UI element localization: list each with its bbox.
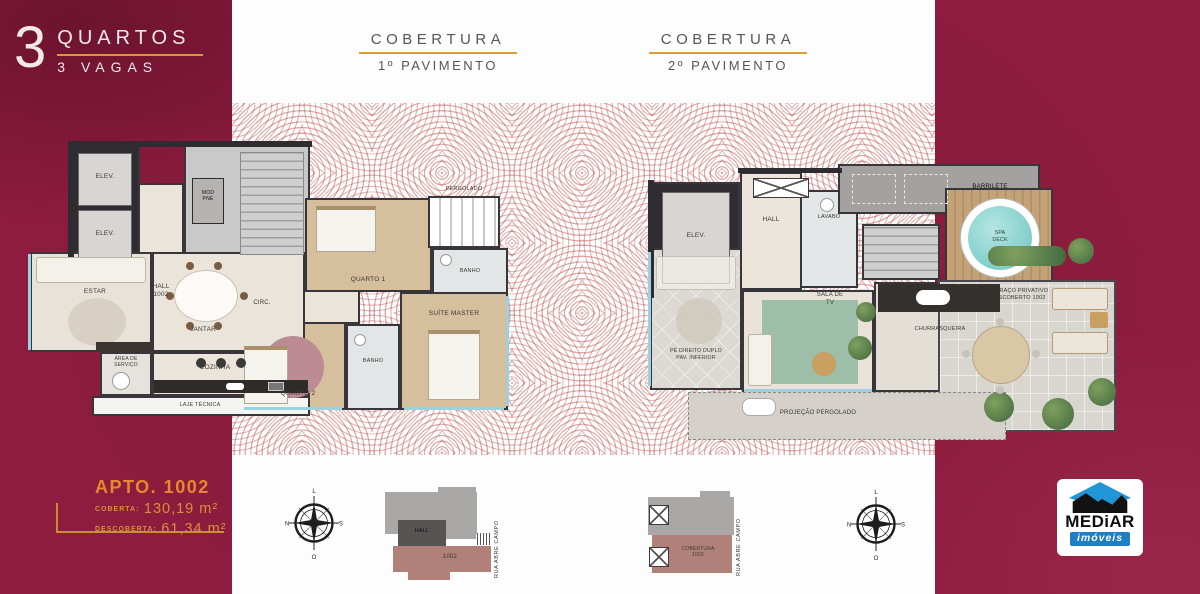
area-coberta-label: COBERTA:	[95, 506, 139, 513]
area-descoberta-label: DESCOBERTA:	[95, 526, 157, 533]
window-strip	[648, 252, 651, 386]
area-coberta-value: 130,19 m²	[144, 501, 218, 517]
toilet	[354, 334, 366, 346]
plan1-stairs	[240, 152, 304, 255]
terrace-table	[972, 326, 1030, 384]
sofa	[36, 257, 146, 283]
siteplan1-hatch	[477, 533, 491, 545]
window-strip	[744, 389, 872, 392]
plant	[1042, 398, 1074, 430]
room-label-quarto1: QUARTO 1	[318, 276, 418, 284]
plan2-wall-top	[738, 168, 842, 173]
header-2-divider	[649, 52, 807, 54]
flyer-canvas: 3 QUARTOS 3 VAGAS COBERTURA 1º PAVIMENTO…	[0, 0, 1200, 594]
sofa-below	[656, 256, 736, 290]
compass-rose-1: L S O N	[283, 485, 345, 561]
chair	[996, 386, 1004, 394]
sink	[226, 383, 244, 390]
toilet	[820, 198, 834, 212]
barrilete-hatch	[852, 174, 896, 204]
area-descoberta-value: 61,34 m²	[161, 521, 226, 537]
plant	[848, 336, 872, 360]
hedge	[988, 246, 1066, 266]
headline-number: 3	[14, 20, 46, 75]
plant	[1068, 238, 1094, 264]
room-label-churrasqueira: CHURRASQUEIRA	[876, 326, 1004, 333]
apartment-info: APTO. 1002 COBERTA: 130,19 m² DESCOBERTA…	[95, 477, 227, 538]
rug-green	[762, 300, 858, 384]
chair	[1032, 350, 1040, 358]
chair	[240, 292, 248, 300]
headline: 3 QUARTOS 3 VAGAS	[14, 20, 203, 75]
toilet	[440, 254, 452, 266]
headline-line1: QUARTOS	[57, 27, 203, 50]
siteplan1-unit-bump	[408, 572, 450, 580]
plan1-pergolado	[428, 196, 500, 248]
compass-letter-top: L	[312, 489, 316, 495]
compass-letter-bottom: O	[874, 556, 879, 562]
compass-letter-left: N	[847, 523, 851, 529]
mediar-logo: MEDiAR imóveis	[1057, 479, 1143, 556]
info-bracket-vertical	[56, 503, 58, 533]
window-strip	[506, 296, 509, 406]
plant	[984, 392, 1014, 422]
compass-rose-2: L S O N	[845, 486, 907, 562]
compass-letter-left: N	[285, 522, 289, 528]
room-label-hall1002: HALL 1002	[138, 283, 184, 299]
bbq-sink	[916, 290, 950, 305]
skylight-void-marker	[753, 178, 809, 198]
room-label-area-servico: ÁREA DE SERVIÇO	[100, 356, 152, 369]
room-label-estar: ESTAR	[60, 288, 130, 296]
room-label-banho2: BANHO	[348, 358, 398, 365]
rug	[68, 298, 126, 346]
barrilete-hatch	[904, 174, 948, 204]
siteplan2-building-bump	[700, 491, 730, 501]
side-table	[1090, 312, 1108, 328]
header-2-title: COBERTURA	[643, 31, 813, 48]
siteplan2-unit-label: COBERTURA 1002	[668, 546, 728, 559]
mediar-logo-name: MEDiAR	[1065, 513, 1134, 530]
bed	[316, 206, 376, 252]
header-pavimento-1: COBERTURA 1º PAVIMENTO	[353, 31, 523, 73]
header-1-title: COBERTURA	[353, 31, 523, 48]
elevator-shaft-marker	[649, 505, 669, 525]
compass-letter-bottom: O	[312, 555, 317, 561]
compass-letter-top: L	[874, 490, 878, 496]
chair	[214, 262, 222, 270]
pouf	[812, 352, 836, 376]
washer	[112, 372, 130, 390]
room-label-cozinha: COZINHA	[180, 364, 250, 372]
room-label-elev2: ELEV.	[78, 230, 132, 238]
room-label-terraco: TERRAÇO PRIVATIVO DESCOBERTO 1002	[948, 288, 1088, 302]
headline-line2: 3 VAGAS	[57, 59, 203, 75]
header-1-subtitle: 1º PAVIMENTO	[353, 58, 523, 73]
room-label-elev1: ELEV.	[78, 173, 132, 181]
room-label-laje-tecnica: LAJE TÉCNICA	[130, 402, 270, 409]
rug-below	[676, 298, 722, 344]
chair	[962, 350, 970, 358]
room-label-pergolado: PERGOLADO	[424, 186, 504, 193]
room-label-projecao: PROJEÇÃO PERGOLADO	[748, 410, 888, 418]
bed	[428, 330, 480, 400]
elevator-shaft-marker	[649, 547, 669, 567]
headline-text: QUARTOS 3 VAGAS	[57, 27, 203, 75]
room-label-barrilete: BARRILETE	[950, 184, 1030, 192]
room-label-sala-tv: SALA DE TV	[800, 292, 860, 307]
apartment-number: APTO. 1002	[95, 477, 227, 498]
headline-divider	[57, 54, 203, 56]
room-label-quarto2: QUARTO 2	[260, 390, 336, 398]
siteplan1-unit-label: 1002	[425, 554, 475, 562]
room-label-mod-pne: MOD PNE	[192, 190, 224, 203]
chair	[186, 262, 194, 270]
room-label-suite-master: SUÍTE MASTER	[402, 310, 506, 318]
area-coberta-row: COBERTA: 130,19 m²	[95, 500, 227, 518]
room-label-hall: HALL	[744, 216, 798, 224]
room-label-pe-direito: PÉ DIREITO DUPLO PAV. INFERIOR	[652, 348, 740, 361]
window-strip	[404, 407, 504, 410]
header-2-subtitle: 2º PAVIMENTO	[643, 58, 813, 73]
room-label-spa-deck: SPA DECK	[980, 230, 1020, 243]
room-label-elev: ELEV.	[662, 232, 730, 240]
tv-console	[96, 342, 152, 352]
siteplan1-street-label: RUA ABRE CAMPO	[494, 502, 500, 578]
header-1-divider	[359, 52, 517, 54]
plan1-wall-left	[68, 141, 74, 273]
compass-letter-right: S	[339, 522, 343, 528]
plan2-stairs	[862, 224, 940, 280]
plant	[1088, 378, 1116, 406]
compass-letter-right: S	[901, 523, 905, 529]
room-label-jantar: JANTAR	[168, 326, 238, 334]
mediar-roof-icon	[1067, 482, 1133, 514]
header-pavimento-2: COBERTURA 2º PAVIMENTO	[643, 31, 813, 73]
chair	[996, 318, 1004, 326]
lounger	[1052, 332, 1108, 354]
siteplan2-street-label: RUA ABRE CAMPO	[736, 500, 742, 576]
plan1-wall-top	[68, 141, 312, 147]
room-label-lavabo: LAVABO	[800, 214, 858, 221]
sofa	[748, 334, 772, 386]
area-descoberta-row: DESCOBERTA: 61,34 m²	[95, 520, 227, 538]
mediar-logo-tagline: imóveis	[1070, 532, 1130, 546]
room-label-circ: CIRC.	[232, 300, 292, 308]
siteplan1-hall-label: HALL	[398, 528, 446, 535]
window-strip	[28, 254, 31, 350]
room-label-banho1: BANHO	[440, 268, 500, 275]
